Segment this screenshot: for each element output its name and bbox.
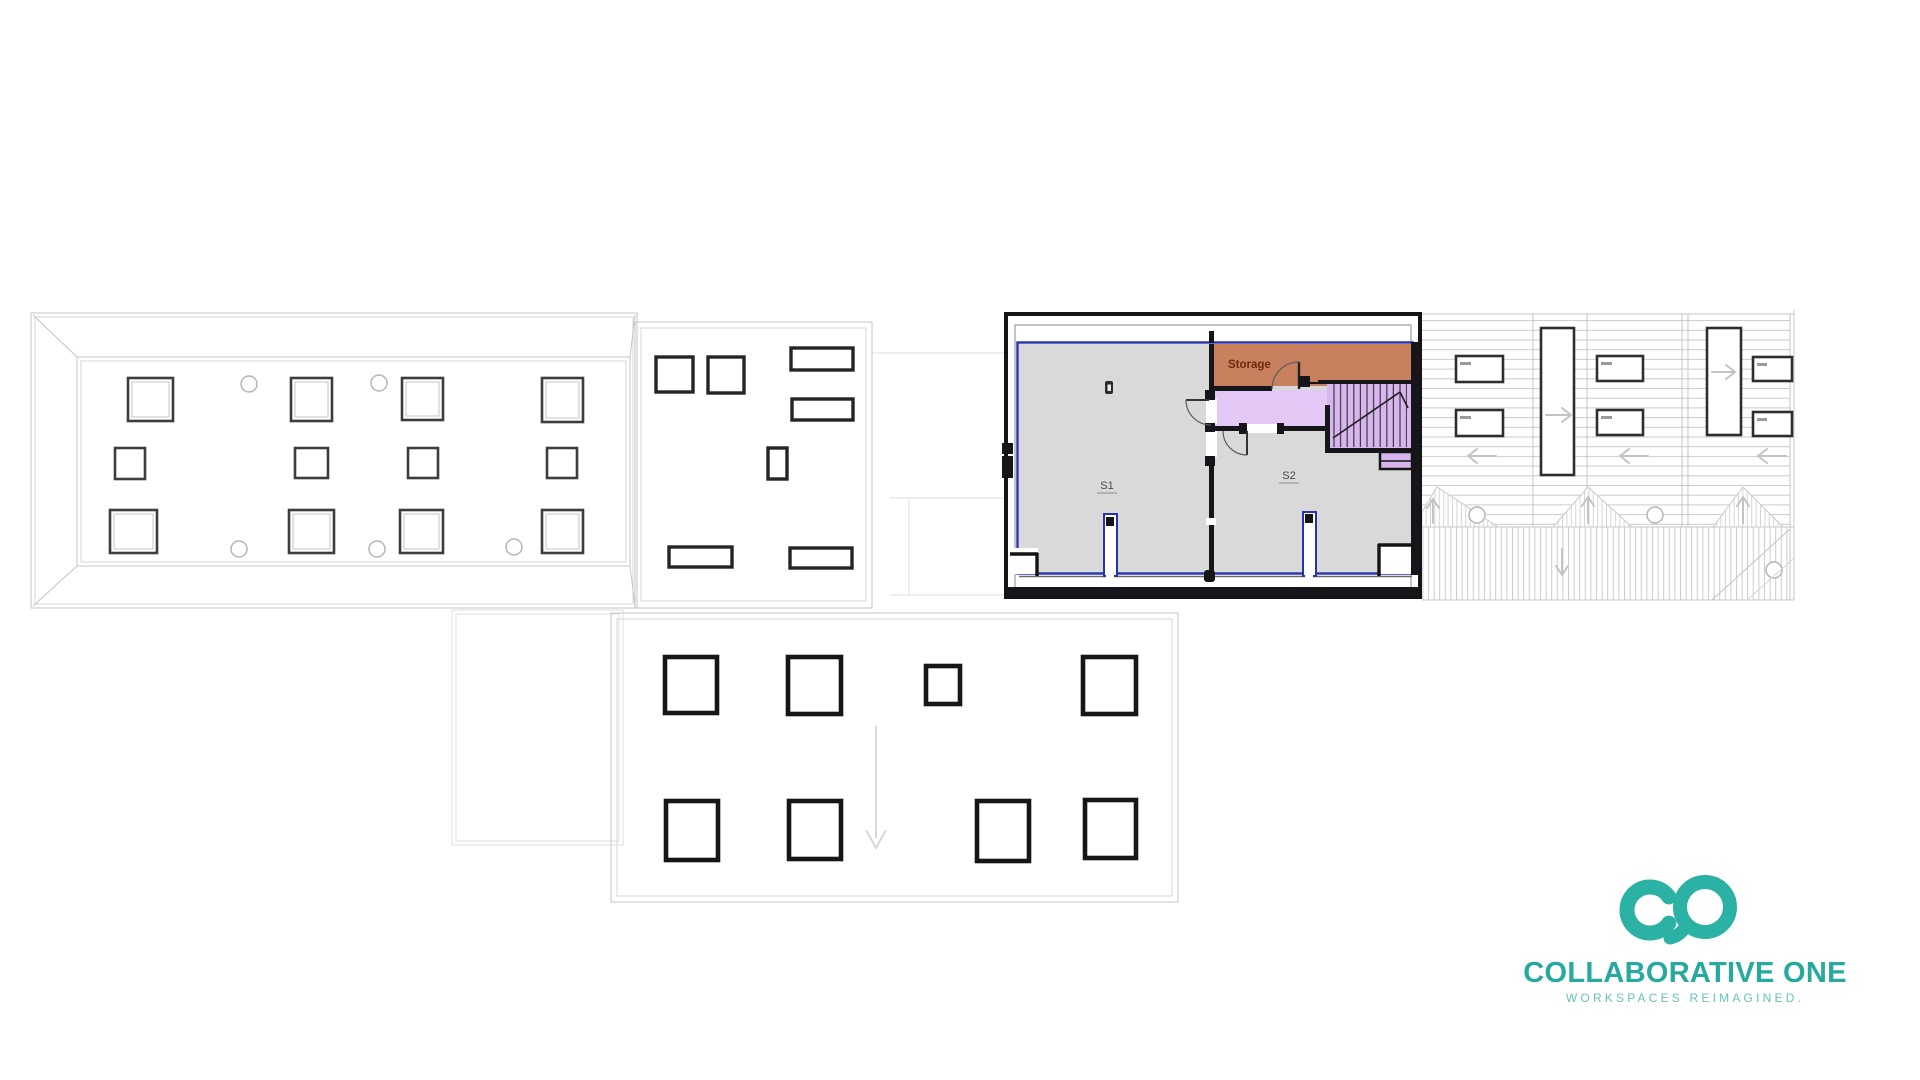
column-square [128,378,173,421]
facade-wall-stub [1002,456,1013,478]
roof-vent-box [1753,412,1792,436]
ground-court-outline-inner [456,614,619,841]
roof-ridge-box [1707,328,1741,435]
column-square [1085,800,1136,858]
mid-plan [635,322,872,608]
roof-plan [1422,310,1794,600]
shaft-rect [708,357,744,393]
unit-plan: Storage S1 S2 [1002,312,1422,599]
vent-tag [1601,416,1612,419]
vent-tag [1601,362,1612,365]
column-square [1083,657,1136,714]
column-square [402,378,443,420]
vent-tag [1460,362,1471,365]
wall-tick [1209,331,1214,343]
vent-tag [1757,363,1767,366]
room-s2-label: S2 [1282,470,1295,482]
door-jamb [1205,456,1215,466]
eave-hatch-band [1422,527,1790,600]
skylight-circle [506,539,522,555]
column-square [400,510,443,553]
storage-wall [1211,386,1272,391]
stair-wall [1318,380,1412,384]
down-arrow [866,726,886,848]
column-square [666,801,718,860]
door-jamb [1239,423,1247,434]
roof-drain-circle [1469,507,1485,523]
vent-tag [1757,418,1767,421]
room-s1-label: S1 [1100,480,1113,492]
corridor [1213,390,1327,428]
column-square-small [926,666,960,704]
roof-vent-box [1597,410,1643,435]
shaft-rect [768,448,787,479]
stair-wall [1325,405,1330,453]
facade-wall-stub [1002,443,1013,454]
door-jamb [1299,376,1310,387]
outlet-marker [1105,381,1113,394]
door-opening [1206,399,1217,424]
logo: COLLABORATIVE ONE WORKSPACES REIMAGINED. [1505,858,1865,1005]
column-square [788,657,841,714]
door-jamb [1205,390,1215,400]
roof-ridge-box [1541,328,1574,475]
ground-outline [452,353,1006,845]
column-square [542,378,583,422]
logo-tagline: WORKSPACES REIMAGINED. [1505,991,1865,1005]
roof-vent-box [1597,356,1643,381]
roof-vent-box [1456,356,1503,382]
shaft-rect [791,348,853,370]
unit-bottom-wall [1008,587,1420,596]
column-square [295,448,328,478]
roof-vent-box [1456,410,1503,436]
corner-notch [1380,546,1411,574]
plan-sheet: Storage S1 S2 COLLABORATIVE ONE WORKSPAC… [0,0,1920,1080]
corner-notch [1012,548,1038,574]
shaft-rect [656,357,693,392]
roof-vent-box [1753,357,1792,381]
column-square [110,510,157,553]
column-square [289,510,334,553]
pilaster [1303,512,1316,580]
frame-corner-diagonal [33,566,77,606]
column-square [789,801,841,859]
wall-end-cap [1204,570,1215,582]
shaft-rect [792,399,853,420]
stair-wall [1325,448,1412,453]
mark-c [1627,887,1673,933]
shaft-rect [790,548,852,568]
column-square [408,448,438,478]
lower-plan [611,613,1178,902]
vent-tag [1460,416,1471,419]
logo-title: COLLABORATIVE ONE [1505,958,1865,988]
frame-corner-diagonal [33,315,77,357]
column-square [542,510,583,553]
door-jamb [1277,423,1284,434]
column-square [977,801,1029,861]
wall-joint [1206,518,1216,525]
column-square [115,448,145,479]
stair-treads [1331,384,1407,447]
co-monogram-icon [1610,868,1750,950]
door-opening [1206,431,1217,457]
storage-label: Storage [1228,359,1271,371]
roof-drain-circle [1647,507,1663,523]
pilaster [1104,514,1117,580]
door-opening [1244,424,1278,433]
skylight-circle [231,541,247,557]
column-square [547,448,577,478]
skylight-circle [371,375,387,391]
ground-court-outline [452,610,623,845]
left-wing-plan [31,313,637,608]
column-square [291,378,332,421]
unit-right-wall [1411,342,1420,575]
skylight-circle [241,376,257,392]
column-square [665,657,717,713]
shaft-rect [669,547,732,567]
skylight-circle [369,541,385,557]
